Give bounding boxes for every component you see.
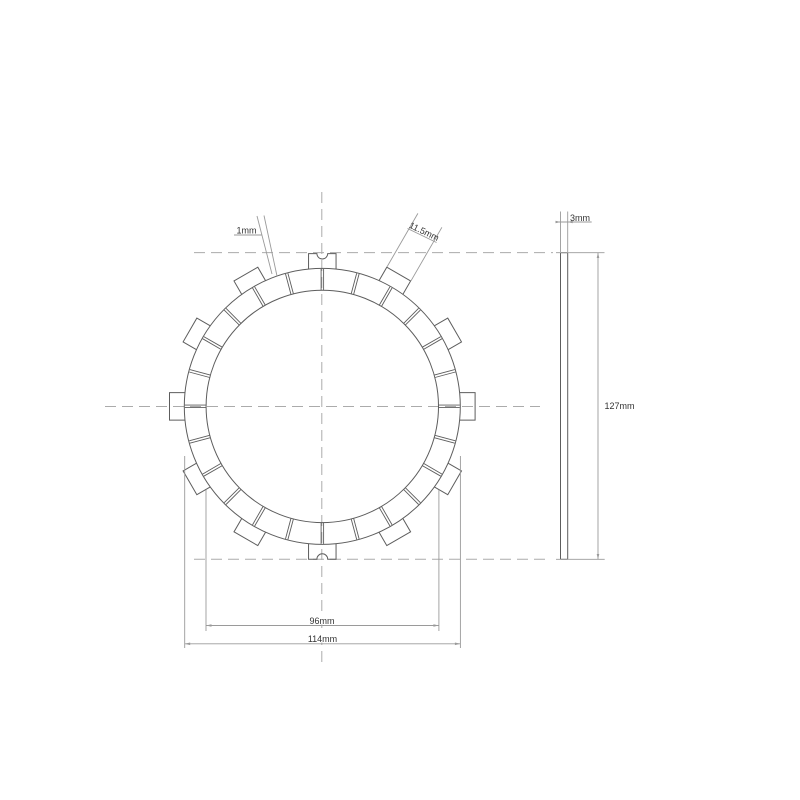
svg-text:3mm: 3mm <box>570 213 590 223</box>
svg-text:1mm: 1mm <box>237 226 257 236</box>
svg-text:114mm: 114mm <box>308 634 337 644</box>
svg-text:11.5mm: 11.5mm <box>408 220 441 243</box>
svg-text:127mm: 127mm <box>605 401 635 411</box>
svg-text:96mm: 96mm <box>309 616 334 626</box>
